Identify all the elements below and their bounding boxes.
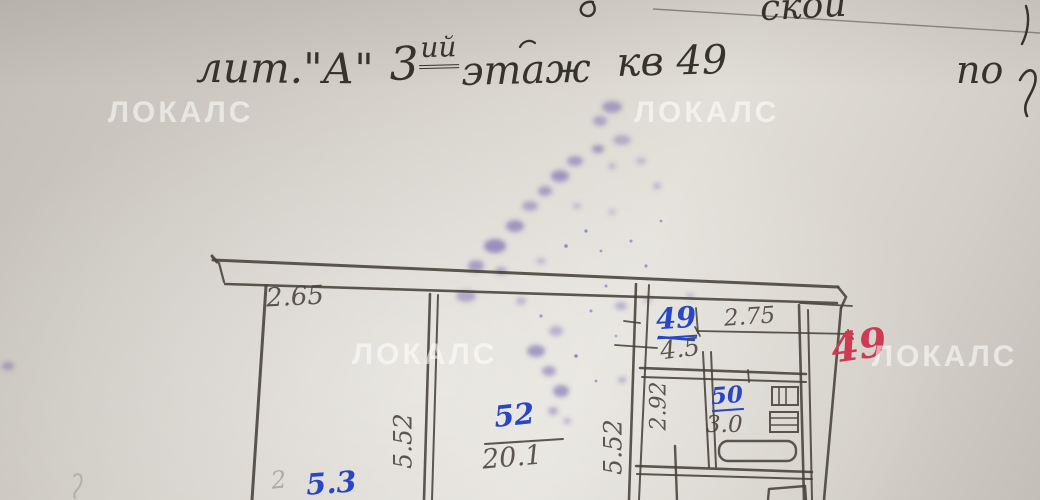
- room-number-52: 52: [492, 396, 536, 434]
- title-floor-suffix: ий: [418, 30, 459, 69]
- sink-icon: [770, 412, 798, 432]
- ink-smudge-dots: [539, 220, 662, 383]
- room-number-50: 50: [710, 381, 744, 412]
- dim-30: 3.0: [706, 412, 743, 438]
- dim-275: 2.75: [723, 302, 776, 332]
- watermark: ЛОКАЛС: [108, 96, 253, 130]
- dim-292: 2.92: [647, 382, 672, 431]
- watermark: ЛОКАЛС: [872, 340, 1017, 374]
- title-lit: лит."А": [196, 43, 374, 94]
- document-photo: скои лит."А"3ийэтажкв 49 по 2.65 2.75 4.…: [0, 0, 1040, 500]
- room-number-53: 5.3: [305, 464, 358, 500]
- toilet-icon: [772, 387, 798, 405]
- watermark: ЛОКАЛС: [352, 338, 497, 372]
- title-floor-number: 3: [389, 36, 420, 91]
- room-number-49: 49: [655, 300, 698, 340]
- bathtub-icon: [719, 441, 796, 461]
- title-floor-word: этаж: [461, 46, 592, 95]
- dim-201: 20.1: [481, 439, 544, 475]
- ink-smudge: [2, 101, 694, 424]
- top-right-text-fragment: скои: [759, 0, 848, 29]
- dim-552-right: 5.52: [599, 419, 628, 475]
- dim-265: 2.65: [265, 281, 324, 314]
- page-title: лит."А"3ийэтажкв 49: [195, 23, 728, 96]
- dim-552-left: 5.52: [389, 413, 418, 469]
- watermark: ЛОКАЛС: [634, 96, 779, 130]
- title-apartment: кв 49: [616, 37, 728, 86]
- dim-faint-pencil: 2: [270, 465, 288, 494]
- faint-scribble: [74, 474, 82, 498]
- title-right-fragment: по: [956, 48, 1003, 92]
